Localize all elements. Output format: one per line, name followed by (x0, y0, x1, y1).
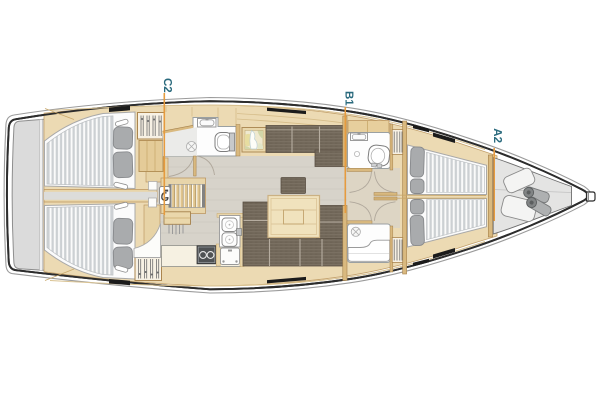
svg-text:B1: B1 (342, 91, 354, 106)
svg-text:C2: C2 (161, 78, 173, 93)
svg-text:A2: A2 (491, 128, 503, 143)
